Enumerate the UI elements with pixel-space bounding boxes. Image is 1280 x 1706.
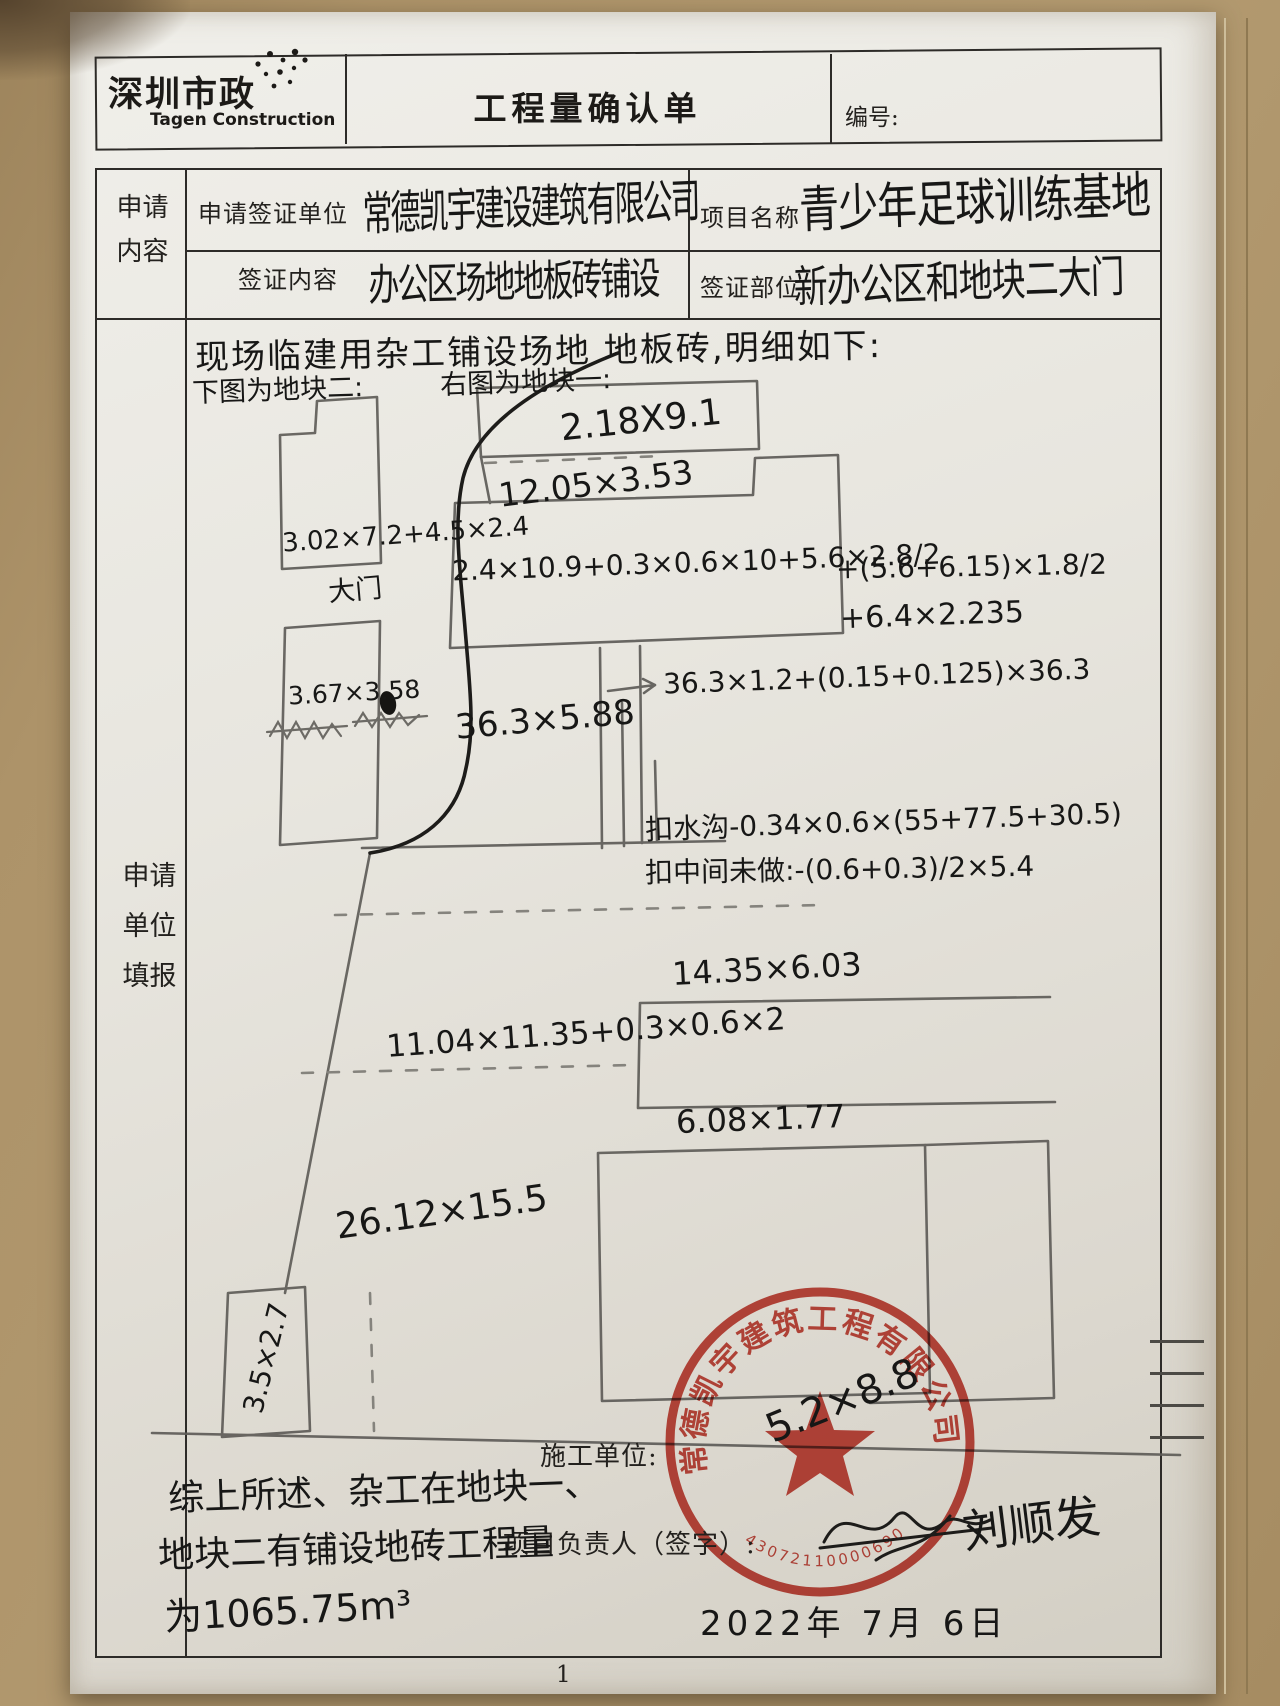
document-title: 工程量确认单 (345, 82, 830, 130)
page-number: 1 (556, 1662, 571, 1688)
page-edge-tick (1150, 1340, 1204, 1343)
crossed-out-scribble (267, 713, 427, 738)
company-logo-subtext: Tagen Construction (150, 110, 335, 130)
dim-wide-bar-add1: +(5.6+6.15)×1.8/2 (836, 548, 1107, 586)
visa-location-label: 签证部位 (700, 268, 800, 303)
visa-location-value: 新办公区和地块二大门 (793, 241, 1124, 316)
applicant-unit-value: 常德凯宇建设建筑有限公司 (362, 162, 699, 244)
page-stack-edge (1224, 18, 1226, 1694)
left-block-caption: 下图为地块二: (191, 365, 363, 410)
page-stack-edge (1246, 18, 1248, 1694)
doc-no-label: 编号: (845, 98, 899, 132)
page-edge-tick (1150, 1404, 1204, 1407)
applicant-unit-label: 申请签证单位 (198, 194, 348, 229)
project-name-label: 项目名称 (700, 198, 800, 233)
gate-label: 大门 (326, 566, 383, 610)
logo-dots-icon (250, 44, 320, 94)
dim-wide-bar-add2: +6.4×2.235 (839, 595, 1024, 636)
section-label-apply-content: 申请 内容 (100, 186, 185, 274)
page-edge-tick (1150, 1372, 1204, 1375)
dim-small-strip: 6.08×1.77 (675, 1097, 846, 1141)
visa-content-label: 签证内容 (238, 260, 338, 295)
visa-content-value: 办公区场地地板砖铺设 (368, 243, 659, 313)
header-divider (830, 54, 832, 144)
page-edge-tick (1150, 1436, 1204, 1439)
scanned-document-photo: 深圳市政 Tagen Construction 工程量确认单 编号: 申请 内容… (0, 0, 1280, 1706)
right-block-caption: 右图为地块一: (439, 357, 611, 402)
confirmation-date: 2022年 7月 6日 (700, 1596, 1008, 1645)
project-name-value: 青少年足球训练基地 (798, 155, 1151, 243)
dim-middle-deduct: 扣中间未做:-(0.6+0.3)/2×5.4 (645, 845, 1035, 892)
